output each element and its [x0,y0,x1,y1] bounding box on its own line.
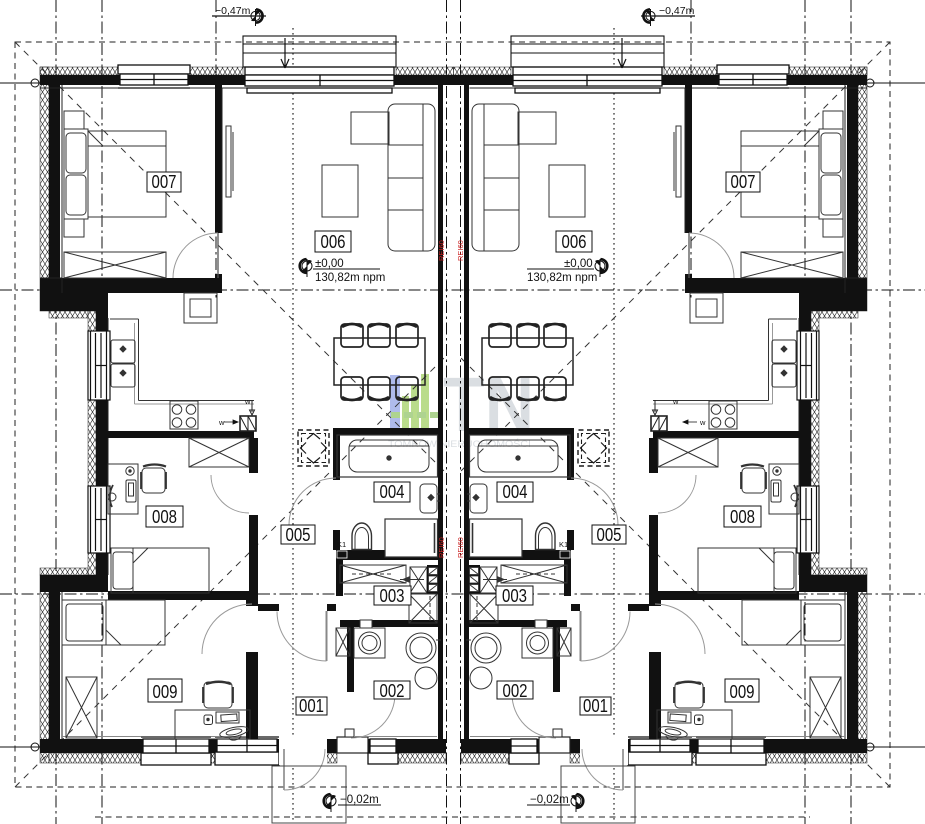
svg-text:004: 004 [503,481,528,502]
svg-text:−0,02m: −0,02m [340,794,379,806]
svg-text:006: 006 [321,231,346,252]
svg-text:w: w [699,418,706,427]
svg-text:w: w [244,397,251,406]
svg-text:009: 009 [153,681,178,702]
svg-text:w: w [672,397,679,406]
svg-text:005: 005 [286,524,311,545]
svg-text:004: 004 [380,481,405,502]
svg-text:w: w [218,418,225,427]
svg-text:003: 003 [502,585,527,606]
svg-text:007: 007 [731,171,756,192]
svg-text:−0,47m: −0,47m [659,5,695,17]
svg-text:003: 003 [380,585,405,606]
svg-text:±0,00: ±0,00 [564,258,593,270]
svg-text:130,82m npm: 130,82m npm [527,272,597,284]
svg-text:008: 008 [730,506,755,527]
svg-text:007: 007 [152,171,177,192]
svg-text:130,82m npm: 130,82m npm [315,272,385,284]
svg-text:−0,47m: −0,47m [215,5,251,17]
svg-text:006: 006 [562,231,587,252]
svg-text:REI60: REI60 [456,537,465,558]
svg-text:008: 008 [152,506,177,527]
svg-text:REI60: REI60 [456,240,465,261]
svg-text:−0,02m: −0,02m [530,794,569,806]
svg-text:002: 002 [380,680,405,701]
svg-text:K1: K1 [337,540,346,549]
svg-text:001: 001 [299,695,324,716]
svg-text:REI60: REI60 [437,537,446,558]
svg-text:009: 009 [730,681,755,702]
svg-text:K1: K1 [559,540,568,549]
svg-text:001: 001 [583,695,608,716]
svg-text:REI60: REI60 [437,240,446,261]
svg-text:±0,00: ±0,00 [315,258,344,270]
svg-text:005: 005 [597,524,622,545]
svg-text:002: 002 [503,680,528,701]
